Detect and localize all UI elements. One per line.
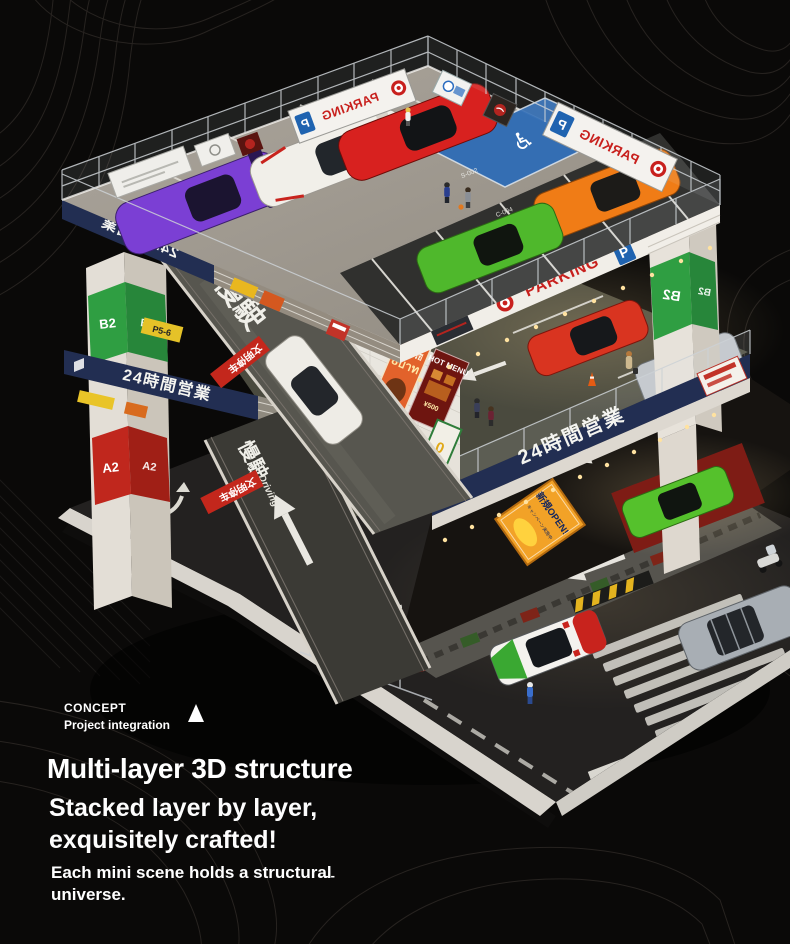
pedestrian-gray (465, 187, 471, 208)
project-integration-label: Project integration (64, 718, 170, 732)
pillar-b2-right-label2: B2 (697, 286, 712, 299)
body-line2: universe. (51, 885, 126, 904)
body-line1: Each mini scene holds a structural (51, 863, 332, 882)
headline-sub2: exquisitely crafted! (49, 826, 277, 854)
pedestrian-girl-2 (488, 406, 494, 426)
column-left: B2 B2 A2 A2 (86, 252, 172, 610)
dashes-label: --- (318, 868, 337, 883)
pedestrian-navy (444, 182, 450, 203)
basketball (458, 204, 463, 209)
pedestrian-girl-1 (474, 398, 480, 418)
pedestrian-blonde (405, 107, 410, 126)
concept-label: CONCEPT (64, 701, 126, 715)
pillar-a2-label: A2 (101, 459, 119, 476)
pillar-a2-label2: A2 (142, 460, 158, 474)
pedestrian-worker (527, 682, 533, 704)
diorama-scene: 100 礼让行人 (0, 0, 790, 944)
product-hero-image: 100 礼让行人 (0, 0, 790, 944)
headline-title: Multi-layer 3D structure (47, 753, 353, 784)
pillar-b2-left-label: B2 (98, 315, 116, 332)
pillar-b2-right-label: B2 (662, 286, 682, 304)
headline-sub1: Stacked layer by layer, (49, 794, 317, 822)
